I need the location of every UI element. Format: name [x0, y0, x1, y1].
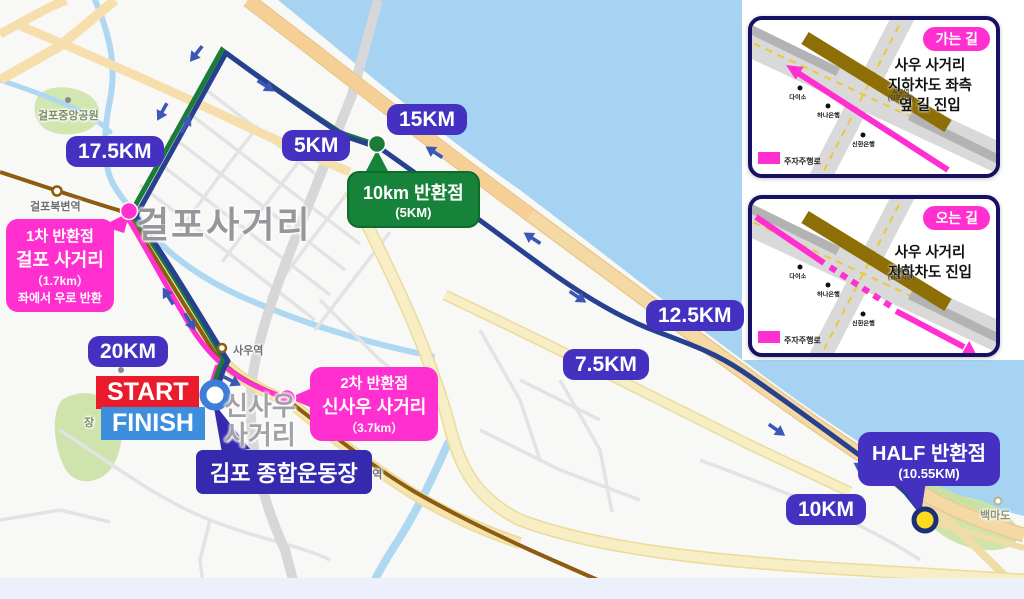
half-line1: HALF 반환점 [872, 437, 986, 466]
km-badge-10: 10KM [786, 494, 866, 525]
turn10k-line2: (5KM) [363, 205, 464, 220]
turn1-line1: 1차 반환점 [16, 225, 104, 246]
inset-coming-legend-label: 주자주행로 [784, 334, 821, 346]
turn2-line1: 2차 반환점 [322, 372, 426, 393]
inset-coming-station: 사우역 (김포시청) [888, 269, 914, 281]
inset-going-panel: 가는 길 사우 사거리 지하차도 좌측 옆 길 진입 다이소 하나은행 신한은행… [748, 16, 1000, 178]
station-geolpobukbyeon-dot [53, 187, 62, 196]
turn1-line2: 걸포 사거리 [16, 246, 104, 272]
turn2-callout: 2차 반환점 신사우 사거리 （3.7km） [310, 367, 438, 441]
station-sau-dot [218, 344, 226, 352]
poi-dot [118, 367, 124, 373]
station-sau-label: 사우역 [233, 342, 263, 358]
inset-going-poi-shinhan: 신한은행 [852, 139, 875, 148]
turn2-line3: （3.7km） [322, 419, 426, 436]
baekmado-dot [995, 498, 1002, 505]
km-badge-7-5: 7.5KM [563, 349, 649, 380]
finish-badge: FINISH [101, 407, 205, 440]
stadium-label: 김포 종합운동장 [196, 450, 372, 494]
km-badge-17-5: 17.5KM [66, 136, 164, 167]
place-sinsau-line2: 사거리 [224, 421, 296, 450]
turn10k-line1: 10km 반환점 [363, 179, 464, 205]
inset-going-poi-hana: 하나은행 [817, 110, 840, 119]
park-label: 걸포중앙공원 [38, 107, 99, 123]
course-map: 걸포사거리 신사우 사거리 걸포북변역 사우역 풍무역 걸포중앙공원 장 백마도… [0, 0, 1024, 599]
inset-going-desc1: 사우 사거리 [870, 56, 990, 76]
start-badge: START [96, 376, 199, 409]
inset-going-title: 가는 길 [923, 27, 990, 51]
inset-coming-title: 오는 길 [923, 206, 990, 230]
inset-coming-poi-shinhan: 신한은행 [852, 318, 875, 327]
turn1-dot [121, 203, 138, 220]
km-badge-15: 15KM [387, 104, 467, 135]
baekmado-label: 백마도 [980, 507, 1010, 523]
km-badge-12-5: 12.5KM [646, 300, 744, 331]
inset-coming-desc1: 사우 사거리 [870, 243, 990, 263]
inset-coming-station-line2: (김포시청) [888, 275, 914, 281]
inset-coming-poi-hana: 하나은행 [817, 289, 840, 298]
station-geolpobukbyeon-label: 걸포북변역 [30, 198, 81, 214]
km-badge-20: 20KM [88, 336, 168, 367]
turn1-line4: 좌에서 우로 반환 [16, 289, 104, 306]
turn1-callout: 1차 반환점 걸포 사거리 （1.7km） 좌에서 우로 반환 [6, 219, 114, 312]
inset-going-legend-label: 주자주행로 [784, 155, 821, 167]
inset-coming-legend-swatch [758, 331, 780, 343]
place-geolpo-sageori: 걸포사거리 [136, 196, 312, 248]
inset-going-poi-daiso: 다이소 [789, 92, 806, 101]
turn1-line3: （1.7km） [16, 272, 104, 289]
half-line2: (10.55KM) [872, 466, 986, 481]
inset-coming-poi-daiso: 다이소 [789, 271, 806, 280]
inset-coming-panel: 오는 길 사우 사거리 지하차도 진입 다이소 하나은행 신한은행 사우역 (김… [748, 195, 1000, 357]
inset-going-station-line2: (김포시청) [888, 96, 914, 102]
turn2-line2: 신사우 사거리 [322, 393, 426, 419]
km-badge-5: 5KM [282, 130, 350, 161]
place-sinsau-line1: 신사우 [224, 392, 296, 421]
half-callout: HALF 반환점 (10.55KM) [858, 432, 1000, 486]
jangneung-label: 장 [84, 414, 94, 430]
park-poi-dot [65, 97, 71, 103]
turn10k-callout: 10km 반환점 (5KM) [347, 171, 480, 228]
inset-going-legend-swatch [758, 152, 780, 164]
turn10k-dot [369, 136, 386, 153]
bottom-water-band [0, 578, 1024, 599]
inset-going-station: 사우역 (김포시청) [888, 90, 914, 102]
half-dot [914, 509, 936, 531]
inset-going-desc: 사우 사거리 지하차도 좌측 옆 길 진입 [870, 56, 990, 116]
